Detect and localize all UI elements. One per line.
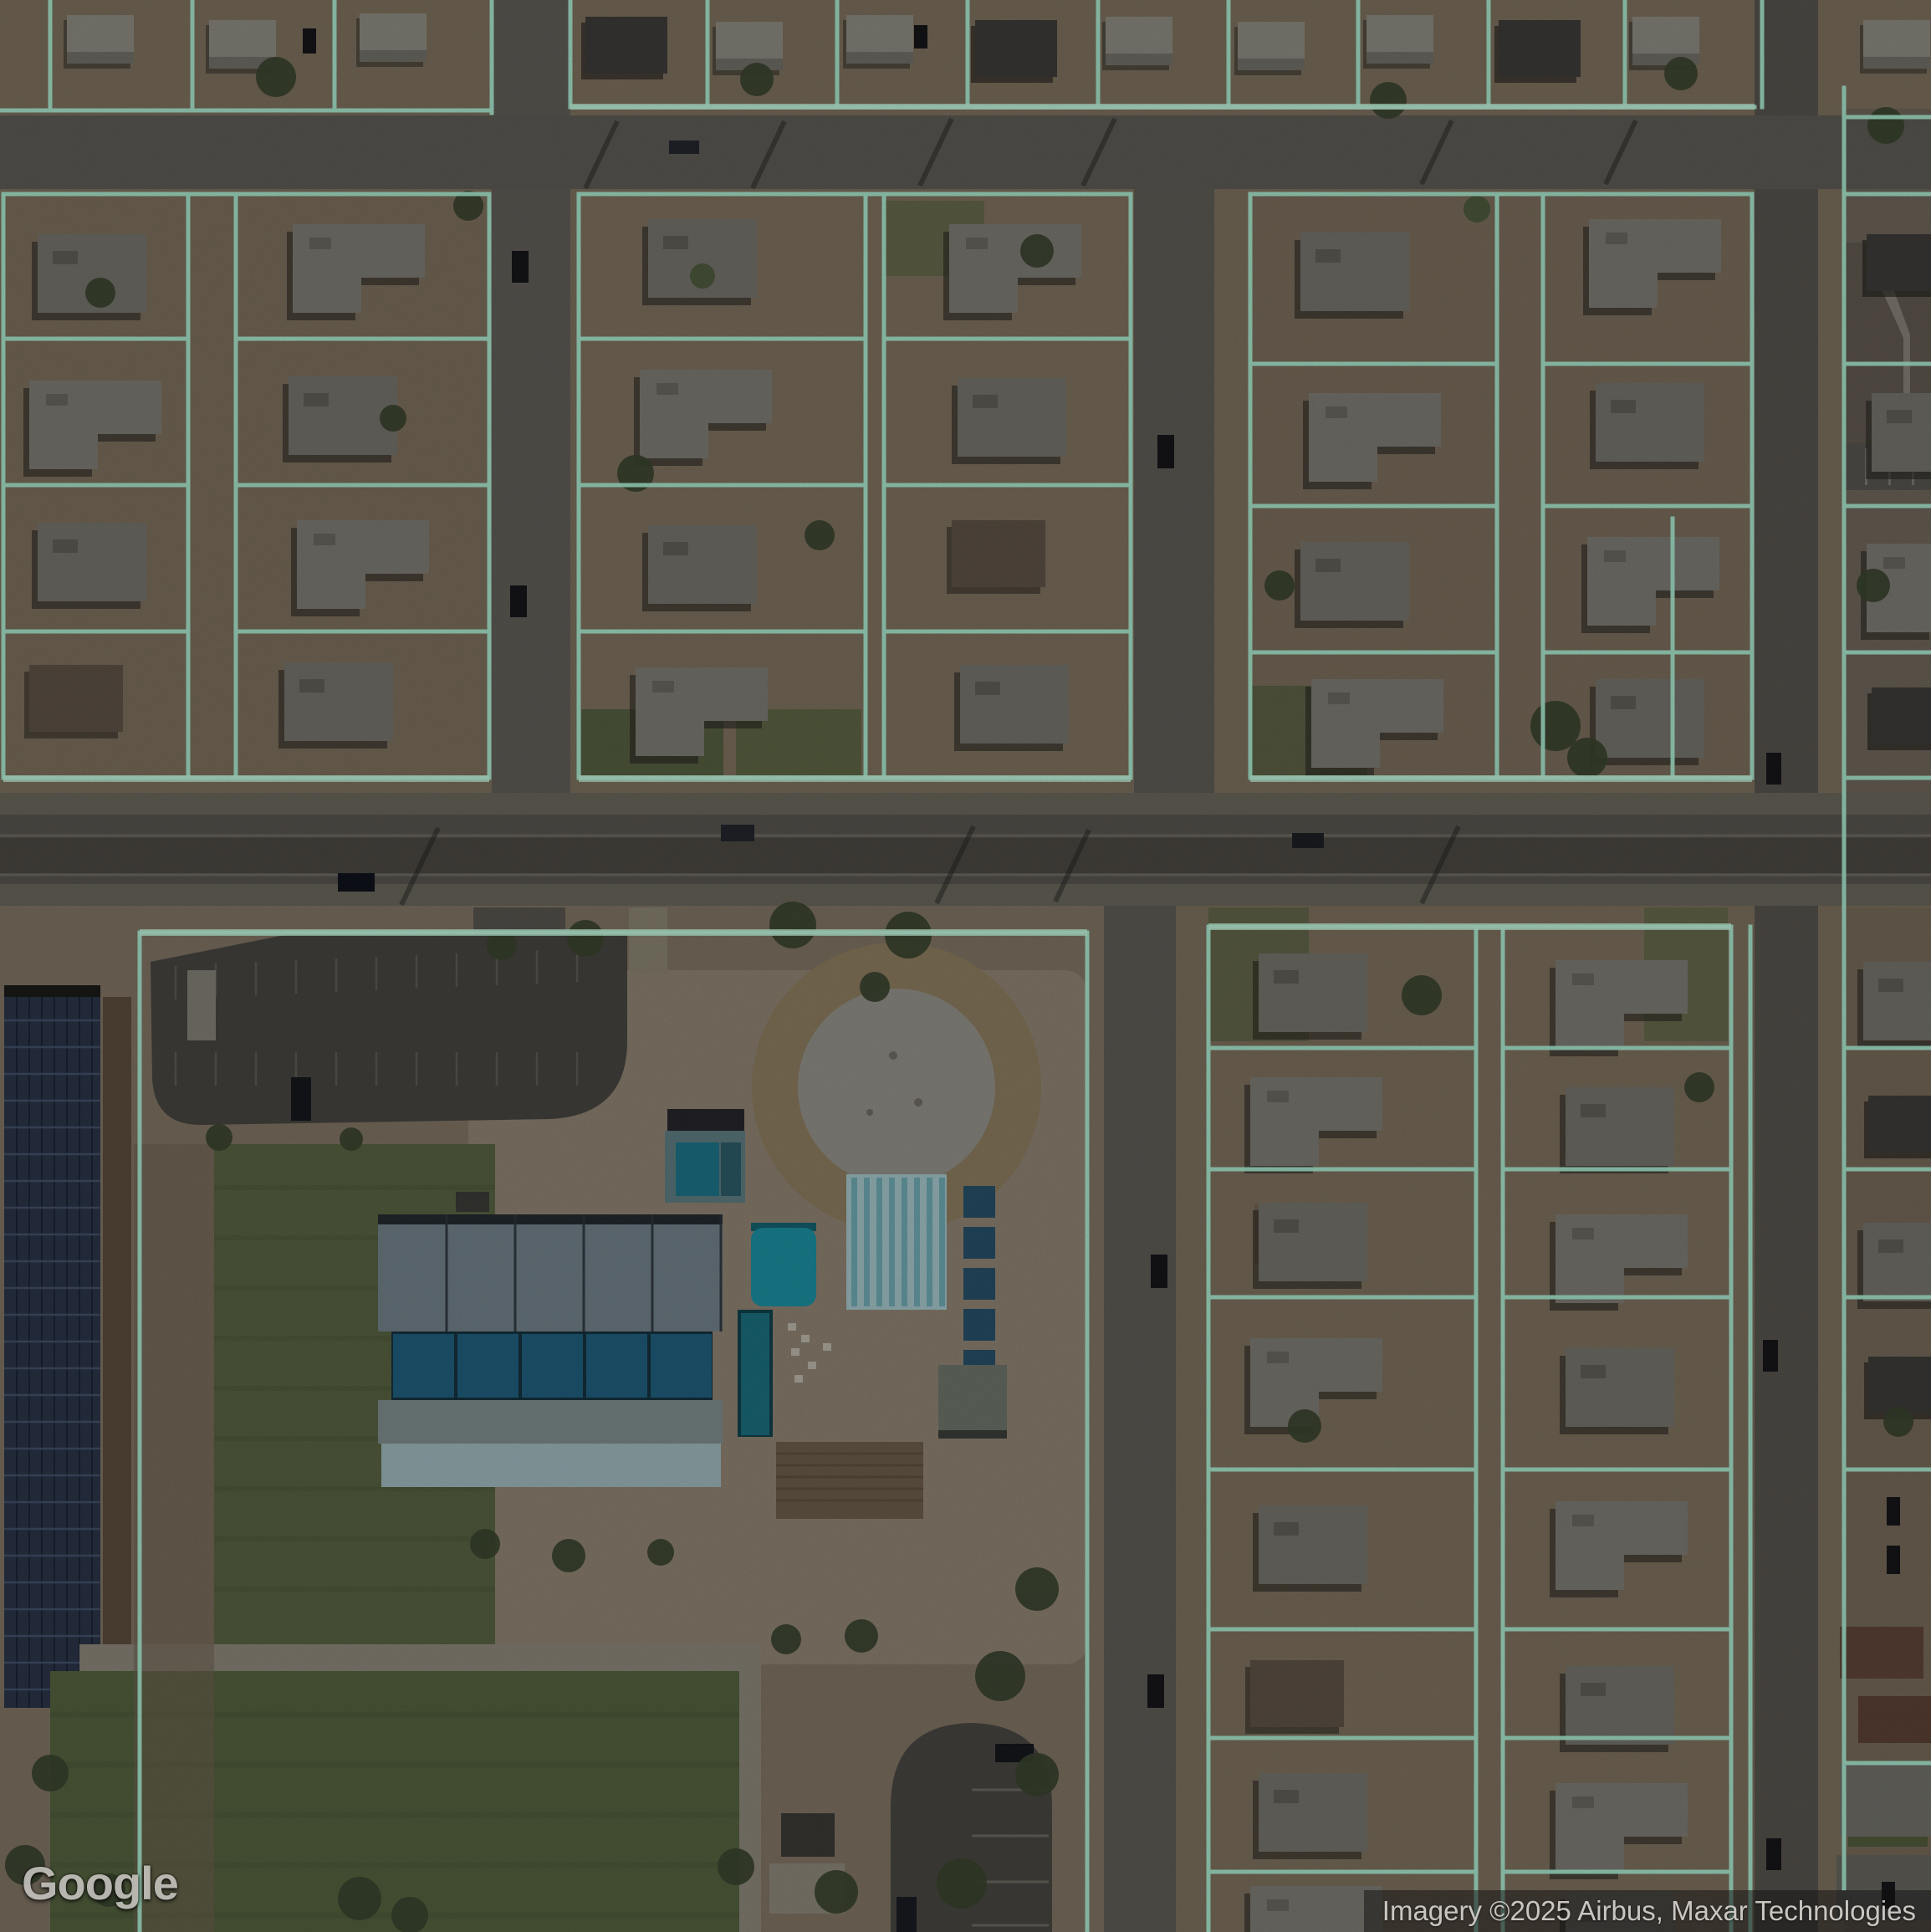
satellite-map-canvas[interactable] (0, 0, 1931, 1932)
satellite-map-view[interactable]: Google Imagery ©2025 Airbus, Maxar Techn… (0, 0, 1931, 1932)
google-watermark[interactable]: Google (22, 1856, 178, 1910)
attribution-bar: Imagery ©2025 Airbus, Maxar Technologies (1364, 1890, 1931, 1932)
imagery-noise (0, 0, 1931, 1932)
attribution-text: Imagery ©2025 Airbus, Maxar Technologies (1382, 1895, 1916, 1927)
